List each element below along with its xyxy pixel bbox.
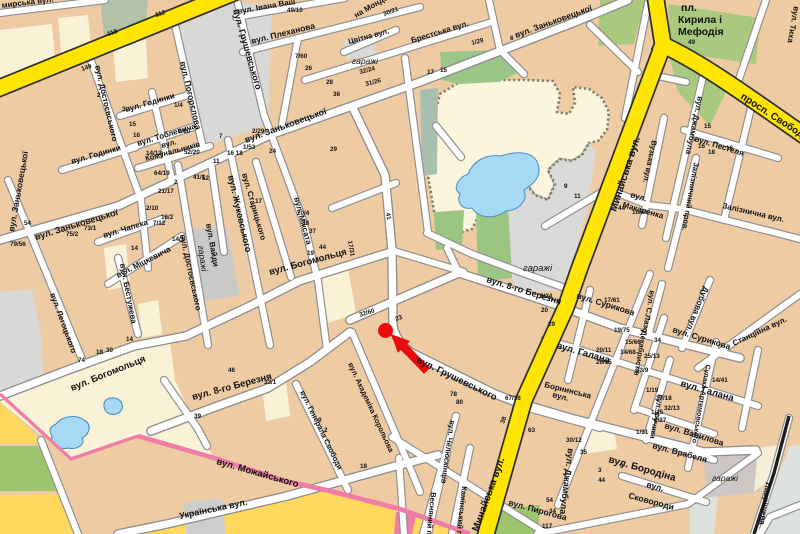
svg-text:29: 29 <box>330 146 338 153</box>
svg-text:Мефодія: Мефодія <box>678 26 724 38</box>
svg-text:1/4: 1/4 <box>174 102 183 109</box>
svg-text:44: 44 <box>319 244 327 251</box>
svg-text:2: 2 <box>174 179 178 186</box>
svg-text:28: 28 <box>326 79 334 86</box>
svg-text:54: 54 <box>546 497 554 504</box>
svg-text:49: 49 <box>688 39 696 46</box>
svg-text:10/46: 10/46 <box>632 209 648 216</box>
svg-text:7/12: 7/12 <box>153 220 166 227</box>
svg-text:49/10: 49/10 <box>287 7 303 14</box>
svg-text:38: 38 <box>302 220 310 227</box>
svg-text:75/2: 75/2 <box>66 231 79 238</box>
svg-text:17: 17 <box>255 198 263 205</box>
svg-text:1/10: 1/10 <box>178 128 191 135</box>
svg-text:14/1: 14/1 <box>172 236 185 243</box>
svg-text:35: 35 <box>580 449 588 456</box>
svg-text:26/15: 26/15 <box>596 359 612 366</box>
svg-text:33/9: 33/9 <box>636 367 649 374</box>
svg-text:3: 3 <box>122 106 126 113</box>
svg-text:11: 11 <box>213 158 220 165</box>
svg-text:64/19: 64/19 <box>154 170 170 177</box>
svg-text:11: 11 <box>574 193 581 200</box>
svg-text:9: 9 <box>318 417 322 424</box>
svg-text:15: 15 <box>440 67 448 74</box>
svg-text:17: 17 <box>427 69 435 76</box>
svg-text:32/13: 32/13 <box>664 405 680 412</box>
svg-text:9: 9 <box>620 463 624 470</box>
svg-text:1/25: 1/25 <box>651 409 664 416</box>
svg-text:78: 78 <box>450 391 458 398</box>
svg-text:46: 46 <box>228 367 236 374</box>
svg-text:16 18: 16 18 <box>227 150 243 157</box>
svg-text:19: 19 <box>307 250 315 257</box>
svg-text:3: 3 <box>598 467 602 474</box>
svg-text:14/68: 14/68 <box>620 349 636 356</box>
svg-text:2: 2 <box>324 427 328 434</box>
svg-text:Кирила і: Кирила і <box>678 14 722 26</box>
svg-text:14: 14 <box>131 245 139 252</box>
svg-text:18: 18 <box>96 349 104 356</box>
svg-text:15: 15 <box>129 121 137 128</box>
svg-text:20/11: 20/11 <box>596 347 612 354</box>
svg-text:54: 54 <box>24 220 32 227</box>
svg-text:20: 20 <box>541 307 549 314</box>
svg-text:16: 16 <box>698 143 706 150</box>
svg-text:30: 30 <box>106 347 114 354</box>
svg-text:гаражі: гаражі <box>352 56 379 66</box>
svg-text:17/61: 17/61 <box>604 297 620 304</box>
svg-text:18: 18 <box>360 463 368 470</box>
svg-text:2/24: 2/24 <box>540 293 553 300</box>
svg-text:44: 44 <box>598 477 606 484</box>
svg-text:пл.: пл. <box>681 2 697 14</box>
svg-text:17/18: 17/18 <box>656 395 672 402</box>
svg-text:30/12: 30/12 <box>566 437 582 444</box>
svg-text:2/27: 2/27 <box>654 417 667 424</box>
svg-text:34: 34 <box>654 337 662 344</box>
svg-text:73/1: 73/1 <box>84 225 97 232</box>
svg-text:2: 2 <box>97 92 101 99</box>
svg-text:6: 6 <box>510 35 514 42</box>
svg-text:33/1: 33/1 <box>264 379 277 386</box>
svg-text:2/10: 2/10 <box>146 205 159 212</box>
svg-text:24: 24 <box>269 148 277 155</box>
svg-text:16/2: 16/2 <box>161 214 174 221</box>
svg-text:25/13: 25/13 <box>644 353 660 360</box>
svg-text:20/4: 20/4 <box>297 210 310 217</box>
svg-text:44: 44 <box>618 205 626 212</box>
svg-text:34: 34 <box>549 508 557 515</box>
svg-text:7: 7 <box>219 133 223 140</box>
svg-text:37: 37 <box>309 228 317 235</box>
svg-text:9: 9 <box>564 183 568 190</box>
svg-text:16: 16 <box>726 145 734 152</box>
svg-text:2/29: 2/29 <box>252 128 265 135</box>
svg-text:гаражі: гаражі <box>712 473 739 483</box>
svg-text:21/17: 21/17 <box>158 188 174 195</box>
svg-text:63: 63 <box>528 427 536 434</box>
svg-text:15: 15 <box>704 123 712 130</box>
svg-text:14/41: 14/41 <box>712 377 728 384</box>
svg-text:18: 18 <box>708 149 716 156</box>
svg-text:80: 80 <box>456 399 464 406</box>
svg-text:1/19: 1/19 <box>646 387 659 394</box>
svg-text:36: 36 <box>333 91 341 98</box>
svg-text:1/53: 1/53 <box>243 144 256 151</box>
svg-text:52/20: 52/20 <box>184 149 200 156</box>
svg-text:67/36: 67/36 <box>505 395 521 402</box>
svg-text:15/66: 15/66 <box>625 339 641 346</box>
svg-text:79/56: 79/56 <box>10 241 26 248</box>
svg-text:16: 16 <box>133 132 141 139</box>
svg-text:39: 39 <box>194 413 202 420</box>
svg-text:19/75: 19/75 <box>614 327 630 334</box>
svg-text:1/31: 1/31 <box>636 429 649 436</box>
svg-text:14: 14 <box>126 336 134 343</box>
svg-text:117: 117 <box>542 523 553 530</box>
svg-text:гаражі: гаражі <box>523 263 553 274</box>
svg-text:7/60: 7/60 <box>295 53 308 60</box>
svg-text:14/13: 14/13 <box>146 150 162 157</box>
svg-text:26: 26 <box>305 65 313 72</box>
svg-text:52: 52 <box>202 175 210 182</box>
svg-text:74: 74 <box>78 357 86 364</box>
svg-text:29: 29 <box>548 321 556 328</box>
